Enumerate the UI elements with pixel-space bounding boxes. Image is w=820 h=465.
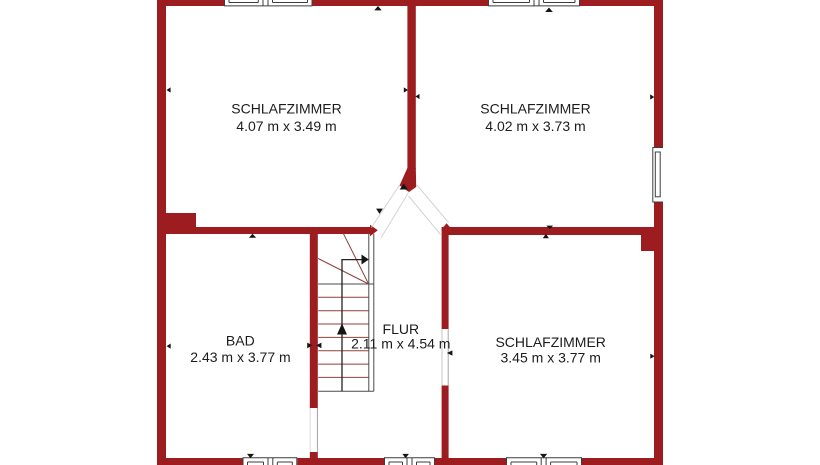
- svg-text:4.07 m x 3.49 m: 4.07 m x 3.49 m: [236, 118, 336, 134]
- svg-text:4.02 m x 3.73 m: 4.02 m x 3.73 m: [485, 118, 585, 134]
- svg-text:SCHLAFZIMMER: SCHLAFZIMMER: [231, 101, 341, 117]
- svg-text:BAD: BAD: [226, 333, 255, 349]
- svg-text:SCHLAFZIMMER: SCHLAFZIMMER: [480, 101, 590, 117]
- svg-text:3.45 m x 3.77 m: 3.45 m x 3.77 m: [501, 349, 601, 365]
- svg-text:2.11 m x 4.54 m: 2.11 m x 4.54 m: [351, 335, 450, 351]
- svg-text:2.43 m x 3.77 m: 2.43 m x 3.77 m: [190, 349, 290, 365]
- svg-text:SCHLAFZIMMER: SCHLAFZIMMER: [495, 334, 605, 350]
